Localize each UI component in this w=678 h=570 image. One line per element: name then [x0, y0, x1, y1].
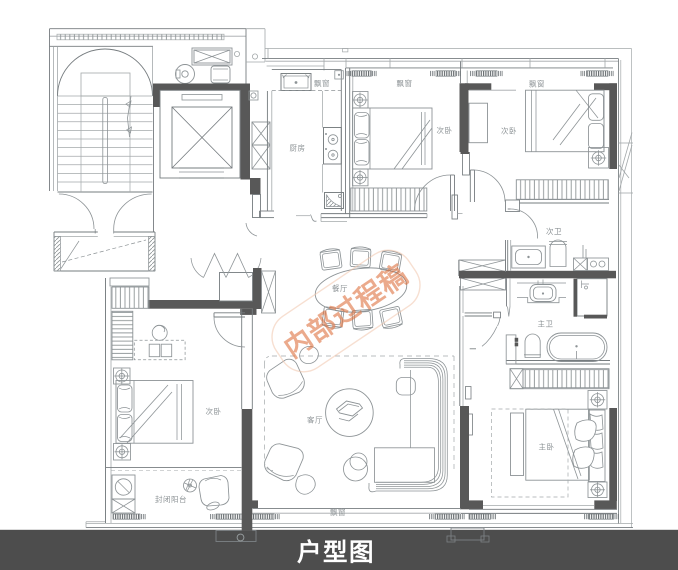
svg-text:飘窗: 飘窗	[397, 78, 413, 88]
svg-text:次卧: 次卧	[501, 126, 517, 136]
svg-text:封闭阳台: 封闭阳台	[155, 494, 187, 504]
svg-text:次卧: 次卧	[206, 406, 222, 416]
svg-text:主卧: 主卧	[539, 442, 555, 452]
svg-text:飘窗: 飘窗	[314, 78, 330, 88]
svg-text:飘窗: 飘窗	[529, 79, 545, 89]
svg-text:主卫: 主卫	[538, 319, 554, 329]
svg-text:厨房: 厨房	[290, 143, 306, 153]
svg-text:飘窗: 飘窗	[330, 507, 346, 517]
svg-text:次卫: 次卫	[546, 226, 562, 236]
svg-text:户型图: 户型图	[297, 538, 375, 567]
svg-text:次卧: 次卧	[437, 125, 453, 135]
svg-text:客厅: 客厅	[307, 415, 323, 425]
